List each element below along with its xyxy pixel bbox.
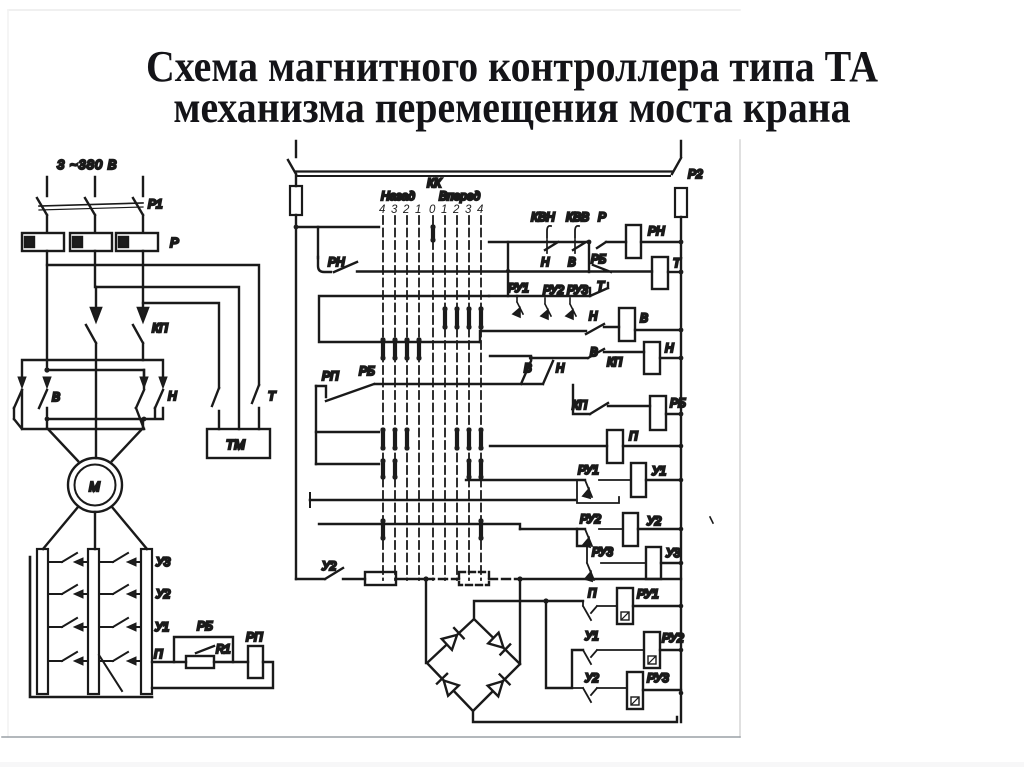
svg-text:РУ3: РУ3 xyxy=(592,547,614,559)
svg-text:В: В xyxy=(568,257,576,269)
svg-text:У2: У2 xyxy=(646,514,662,528)
svg-text:Вперед: Вперед xyxy=(439,189,480,203)
svg-text:3 ~380 В: 3 ~380 В xyxy=(57,157,117,172)
svg-text:КП: КП xyxy=(607,357,623,369)
svg-text:У3: У3 xyxy=(665,546,681,560)
svg-text:Н: Н xyxy=(168,389,177,403)
svg-text:R1: R1 xyxy=(216,644,231,656)
svg-text:РУ1: РУ1 xyxy=(637,587,659,601)
svg-text:У2: У2 xyxy=(321,559,337,573)
svg-text:РУ1: РУ1 xyxy=(508,283,529,295)
svg-text:2: 2 xyxy=(452,204,460,216)
svg-text:РБ: РБ xyxy=(197,619,213,633)
svg-text:РН: РН xyxy=(648,224,665,238)
svg-text:Р1: Р1 xyxy=(148,197,163,211)
svg-text:Н: Н xyxy=(541,257,550,269)
svg-text:РУ2: РУ2 xyxy=(662,631,684,645)
svg-text:Р: Р xyxy=(598,210,606,224)
svg-text:КП: КП xyxy=(572,400,588,412)
svg-text:РП: РП xyxy=(246,630,263,644)
svg-text:0: 0 xyxy=(429,204,436,216)
svg-text:РУ2: РУ2 xyxy=(580,514,602,526)
svg-text:П: П xyxy=(629,429,638,443)
svg-text:3: 3 xyxy=(391,204,398,216)
svg-text:У2: У2 xyxy=(155,587,171,601)
svg-text:Р2: Р2 xyxy=(688,167,703,181)
svg-text:В: В xyxy=(524,363,532,375)
svg-text:КВН: КВН xyxy=(531,210,555,224)
svg-text:Н: Н xyxy=(589,311,598,323)
svg-text:РП: РП xyxy=(322,369,339,383)
svg-text:РУ3: РУ3 xyxy=(647,671,669,685)
svg-text:3: 3 xyxy=(465,204,472,216)
svg-text:У3: У3 xyxy=(155,555,171,569)
svg-text:П: П xyxy=(588,588,597,600)
svg-text:Т: Т xyxy=(268,389,277,403)
svg-text:РУ1: РУ1 xyxy=(578,465,599,477)
svg-text:У1: У1 xyxy=(584,631,599,643)
svg-text:В: В xyxy=(52,390,60,404)
svg-text:П: П xyxy=(154,647,163,661)
svg-text:У1: У1 xyxy=(154,620,169,634)
svg-text:1: 1 xyxy=(415,204,421,216)
svg-text:РН: РН xyxy=(328,255,345,269)
svg-text:2: 2 xyxy=(402,204,410,216)
svg-text:Р: Р xyxy=(170,235,179,250)
svg-text:М: М xyxy=(89,479,100,494)
svg-text:1: 1 xyxy=(441,204,447,216)
svg-text:Н: Н xyxy=(556,363,565,375)
svg-text:Н: Н xyxy=(665,341,674,355)
svg-text:В: В xyxy=(640,311,648,325)
svg-text:4: 4 xyxy=(477,204,483,216)
svg-text:РБ: РБ xyxy=(359,364,375,378)
svg-text:У2: У2 xyxy=(584,673,599,685)
svg-text:КК: КК xyxy=(427,176,442,190)
svg-text:РБ: РБ xyxy=(670,396,686,410)
svg-text:У1: У1 xyxy=(651,464,666,478)
svg-text:КВВ: КВВ xyxy=(566,210,589,224)
svg-text:4: 4 xyxy=(379,204,385,216)
svg-text:КП: КП xyxy=(152,321,168,335)
svg-text:Назад: Назад xyxy=(381,189,415,203)
svg-text:ТМ: ТМ xyxy=(226,437,245,452)
